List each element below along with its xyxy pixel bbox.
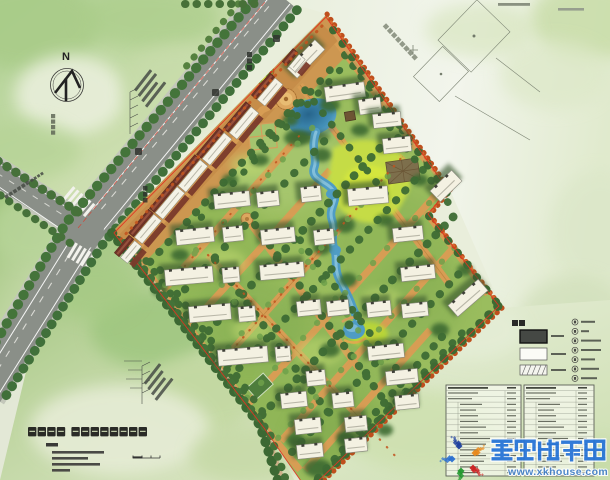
svg-text:www.xkhouse.com: www.xkhouse.com: [507, 466, 608, 478]
svg-text:N: N: [62, 51, 70, 63]
